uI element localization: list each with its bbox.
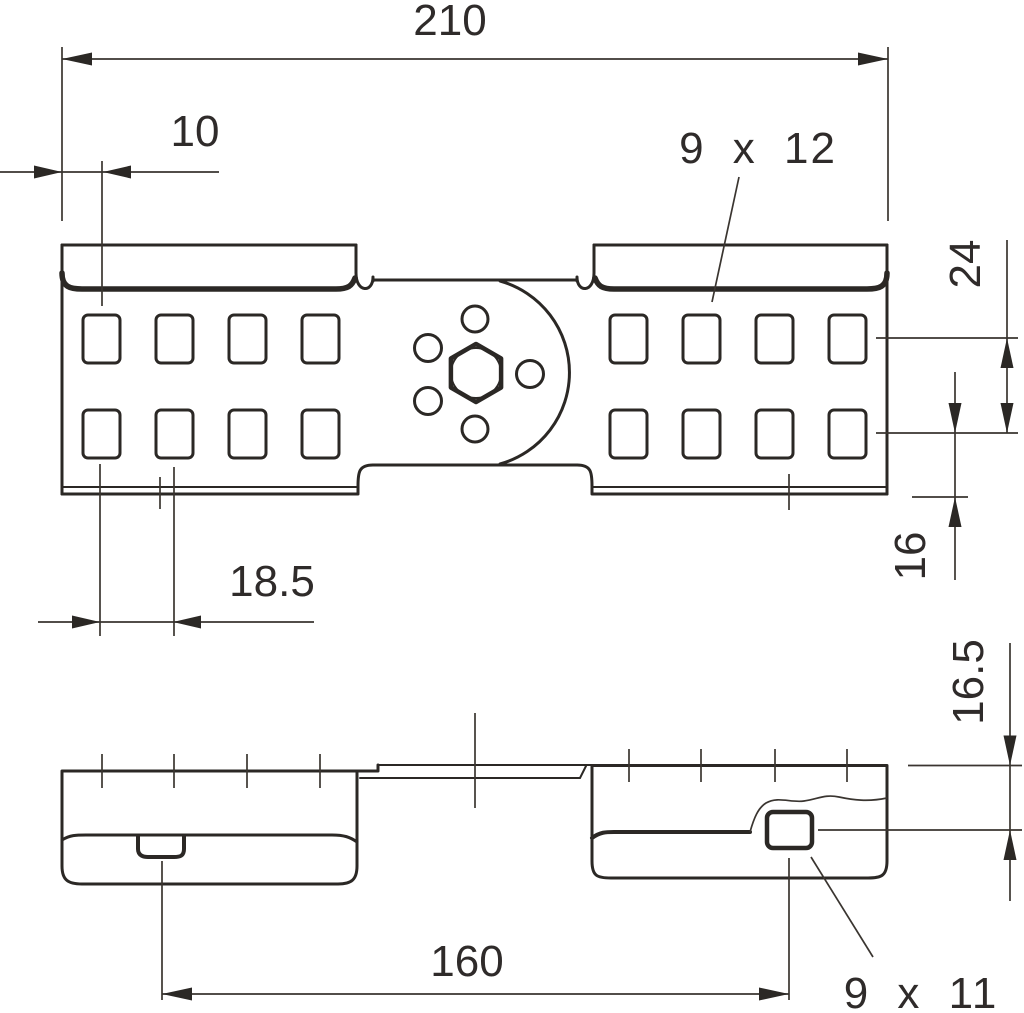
dim-16-label: 16 (886, 532, 935, 581)
arrowhead (949, 403, 962, 433)
arrowhead (858, 53, 888, 66)
slot-size-label-side-view: 9 x 11 (844, 969, 999, 1013)
dim-16_5-label: 16.5 (944, 639, 993, 725)
neck-left-bottom-step (358, 465, 373, 493)
pivot-head-arc (500, 281, 569, 464)
slot-hole (829, 315, 866, 363)
leader-9x12 (712, 177, 739, 302)
left-plate-inner-notch (356, 245, 373, 289)
arrowhead (1004, 830, 1017, 860)
side-right-body-outline (592, 766, 887, 879)
slot-hole (683, 410, 720, 458)
arrowhead (1001, 403, 1014, 433)
arrowhead (62, 53, 92, 66)
dim-10-label: 10 (171, 107, 220, 156)
slot-hole (156, 315, 193, 363)
dim-160-label: 160 (430, 937, 503, 986)
rivet-hole-top (462, 306, 488, 332)
side-view (62, 713, 887, 884)
slot-hole (302, 315, 339, 363)
hex-nut (451, 344, 501, 402)
connector-dimension-drawing: 210 10 9 x 12 24 16 18.5 16.5 160 9 x 11 (0, 0, 1024, 1013)
slot-hole (229, 315, 266, 363)
slot-hole (756, 410, 793, 458)
arrowhead (162, 988, 192, 1001)
technical-drawing-page: 210 10 9 x 12 24 16 18.5 16.5 160 9 x 11 (0, 0, 1024, 1013)
dim-18_5-label: 18.5 (229, 557, 315, 606)
side-latch-tab (138, 836, 184, 857)
arrowhead (72, 616, 100, 629)
arrowhead (103, 166, 131, 179)
neck-right-bottom-step (577, 465, 592, 493)
right-plate-flange-line (595, 273, 887, 289)
rivet-hole-bottom (462, 416, 488, 442)
dimension-labels: 210 10 9 x 12 24 16 18.5 16.5 160 9 x 11 (171, 0, 999, 1013)
slot-hole (829, 410, 866, 458)
slot-hole (756, 315, 793, 363)
slot-size-label-top-view: 9 x 12 (679, 124, 837, 173)
slot-hole (610, 410, 647, 458)
side-left-body-fold-line (62, 835, 357, 842)
arrowhead (759, 988, 789, 1001)
slot-hole (610, 315, 647, 363)
side-right-body-fold-line (592, 832, 750, 838)
hex-nut-inscribed-circle (451, 348, 501, 398)
slot-hole (683, 315, 720, 363)
side-neck-step-left (357, 765, 378, 771)
rivet-hole-right (517, 361, 544, 388)
side-left-body-outline (62, 771, 357, 884)
slot-hole (83, 410, 120, 458)
rivet-hole-left-upper (415, 335, 442, 362)
slot-hole (229, 410, 266, 458)
arrowhead (1004, 736, 1017, 766)
arrowhead (1001, 338, 1014, 368)
rivet-hole-left-lower (415, 388, 442, 415)
arrowhead (173, 616, 201, 629)
pivot-fastener (415, 306, 544, 442)
top-view-slots (83, 315, 866, 458)
side-slot-hole-9x11 (767, 812, 812, 848)
slot-hole (302, 410, 339, 458)
slot-hole (83, 315, 120, 363)
dim-24-label: 24 (941, 240, 990, 289)
right-plate-inner-notch (577, 245, 594, 289)
dim-210-label: 210 (413, 0, 486, 45)
left-plate-flange-line (62, 273, 355, 289)
side-neck-line-bottom (360, 766, 586, 778)
leader-9x11 (811, 857, 873, 957)
arrowhead (949, 497, 962, 527)
slot-hole (156, 410, 193, 458)
arrowhead (34, 166, 62, 179)
